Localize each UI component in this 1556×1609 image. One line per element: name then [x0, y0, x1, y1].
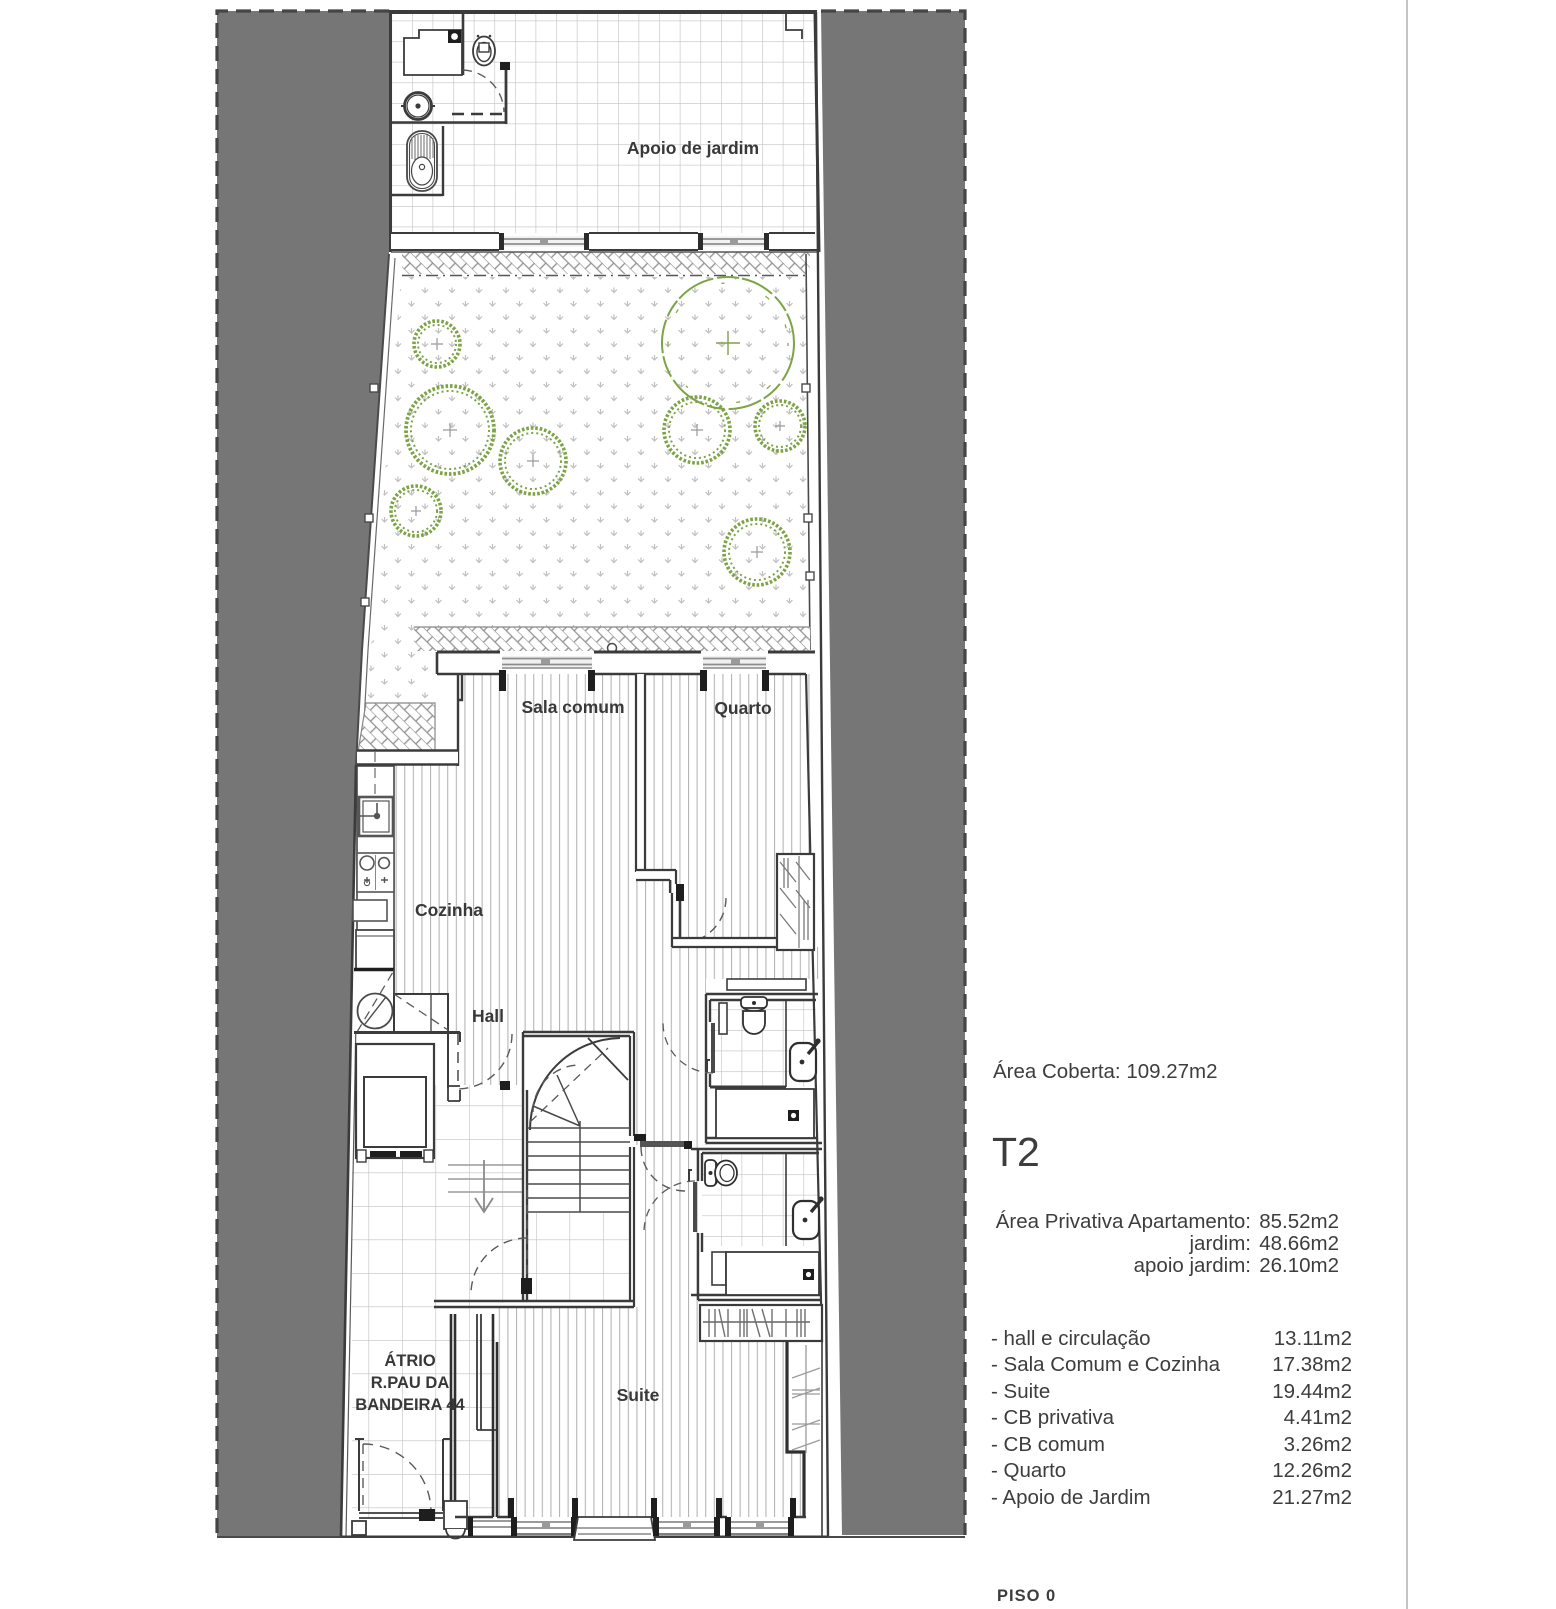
- svg-text:Sala comum: Sala comum: [521, 697, 624, 717]
- svg-text:19.44m2: 19.44m2: [1272, 1380, 1352, 1403]
- svg-text:T2: T2: [992, 1129, 1040, 1175]
- svg-text:- Apoio de Jardim: - Apoio de Jardim: [991, 1486, 1151, 1509]
- svg-text:- CB comum: - CB comum: [991, 1433, 1105, 1456]
- svg-text:R.PAU DA: R.PAU DA: [371, 1374, 450, 1392]
- svg-text:3.26m2: 3.26m2: [1284, 1433, 1352, 1456]
- svg-text:Hall: Hall: [472, 1006, 504, 1026]
- svg-text:Área Coberta: 109.27m2: Área Coberta: 109.27m2: [993, 1060, 1218, 1083]
- svg-text:85.52m2: 85.52m2: [1259, 1210, 1339, 1233]
- svg-text:48.66m2: 48.66m2: [1259, 1232, 1339, 1255]
- svg-text:PISO 0: PISO 0: [997, 1587, 1056, 1605]
- svg-text:- CB privativa: - CB privativa: [991, 1406, 1115, 1429]
- svg-text:17.38m2: 17.38m2: [1272, 1353, 1352, 1376]
- svg-text:BANDEIRA 44: BANDEIRA 44: [355, 1396, 465, 1414]
- svg-text:Quarto: Quarto: [714, 698, 771, 718]
- svg-text:26.10m2: 26.10m2: [1259, 1254, 1339, 1277]
- svg-text:- hall e circulação: - hall e circulação: [991, 1327, 1151, 1350]
- svg-text:Área Privativa Apartamento:: Área Privativa Apartamento:: [996, 1210, 1251, 1233]
- svg-text:21.27m2: 21.27m2: [1272, 1486, 1352, 1509]
- svg-text:- Quarto: - Quarto: [991, 1459, 1066, 1482]
- svg-text:Suite: Suite: [617, 1385, 660, 1405]
- svg-text:ÁTRIO: ÁTRIO: [384, 1351, 435, 1370]
- svg-text:12.26m2: 12.26m2: [1272, 1459, 1352, 1482]
- svg-text:Cozinha: Cozinha: [415, 900, 483, 920]
- svg-text:Apoio de jardim: Apoio de jardim: [627, 138, 759, 158]
- svg-text:jardim:: jardim:: [1188, 1232, 1251, 1255]
- svg-text:4.41m2: 4.41m2: [1284, 1406, 1352, 1429]
- svg-text:apoio jardim:: apoio jardim:: [1134, 1254, 1251, 1277]
- svg-text:13.11m2: 13.11m2: [1274, 1327, 1352, 1350]
- svg-text:- Suite: - Suite: [991, 1380, 1050, 1403]
- svg-text:- Sala Comum e Cozinha: - Sala Comum e Cozinha: [991, 1353, 1221, 1376]
